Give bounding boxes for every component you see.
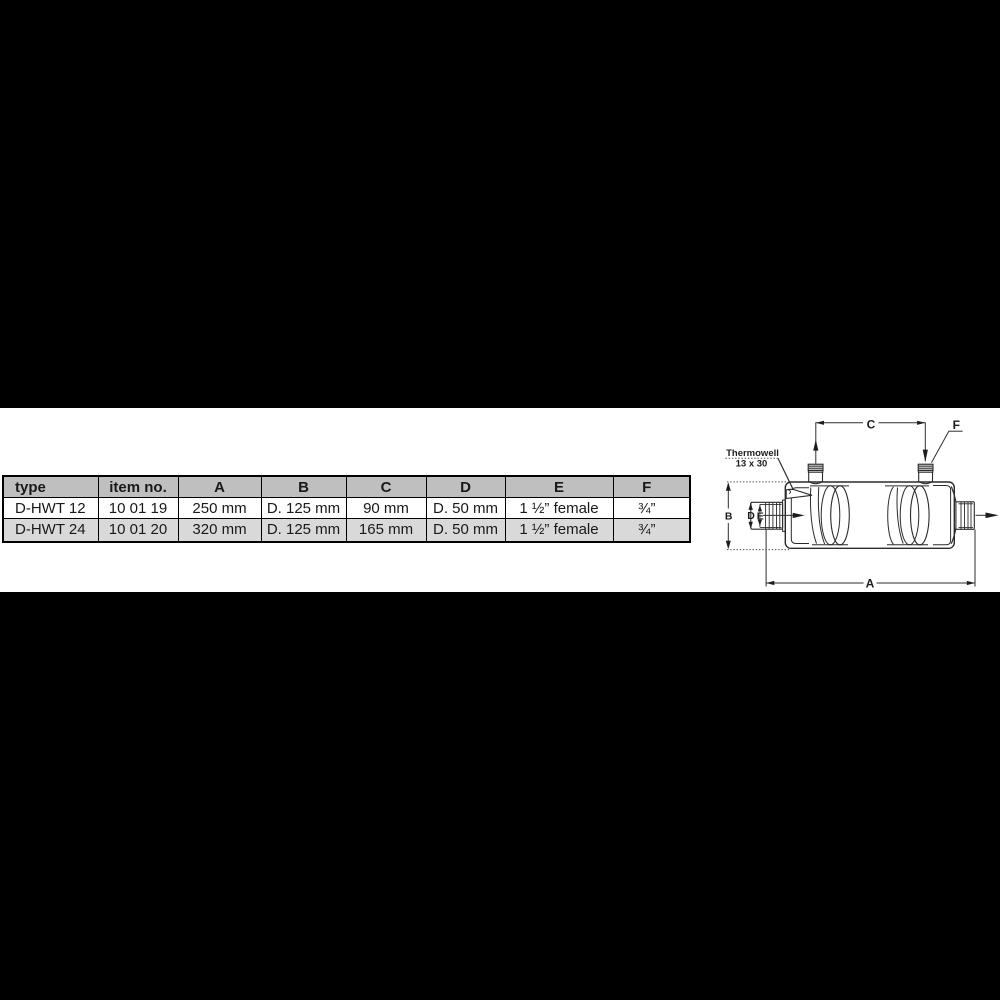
svg-text:B: B: [725, 511, 733, 523]
svg-text:C: C: [867, 418, 876, 432]
svg-text:A: A: [866, 576, 875, 590]
svg-text:Thermowell: Thermowell: [726, 448, 779, 459]
svg-text:13 x 30: 13 x 30: [736, 459, 768, 470]
svg-text:D: D: [747, 510, 755, 522]
svg-text:F: F: [953, 418, 960, 432]
svg-text:E: E: [757, 511, 764, 523]
